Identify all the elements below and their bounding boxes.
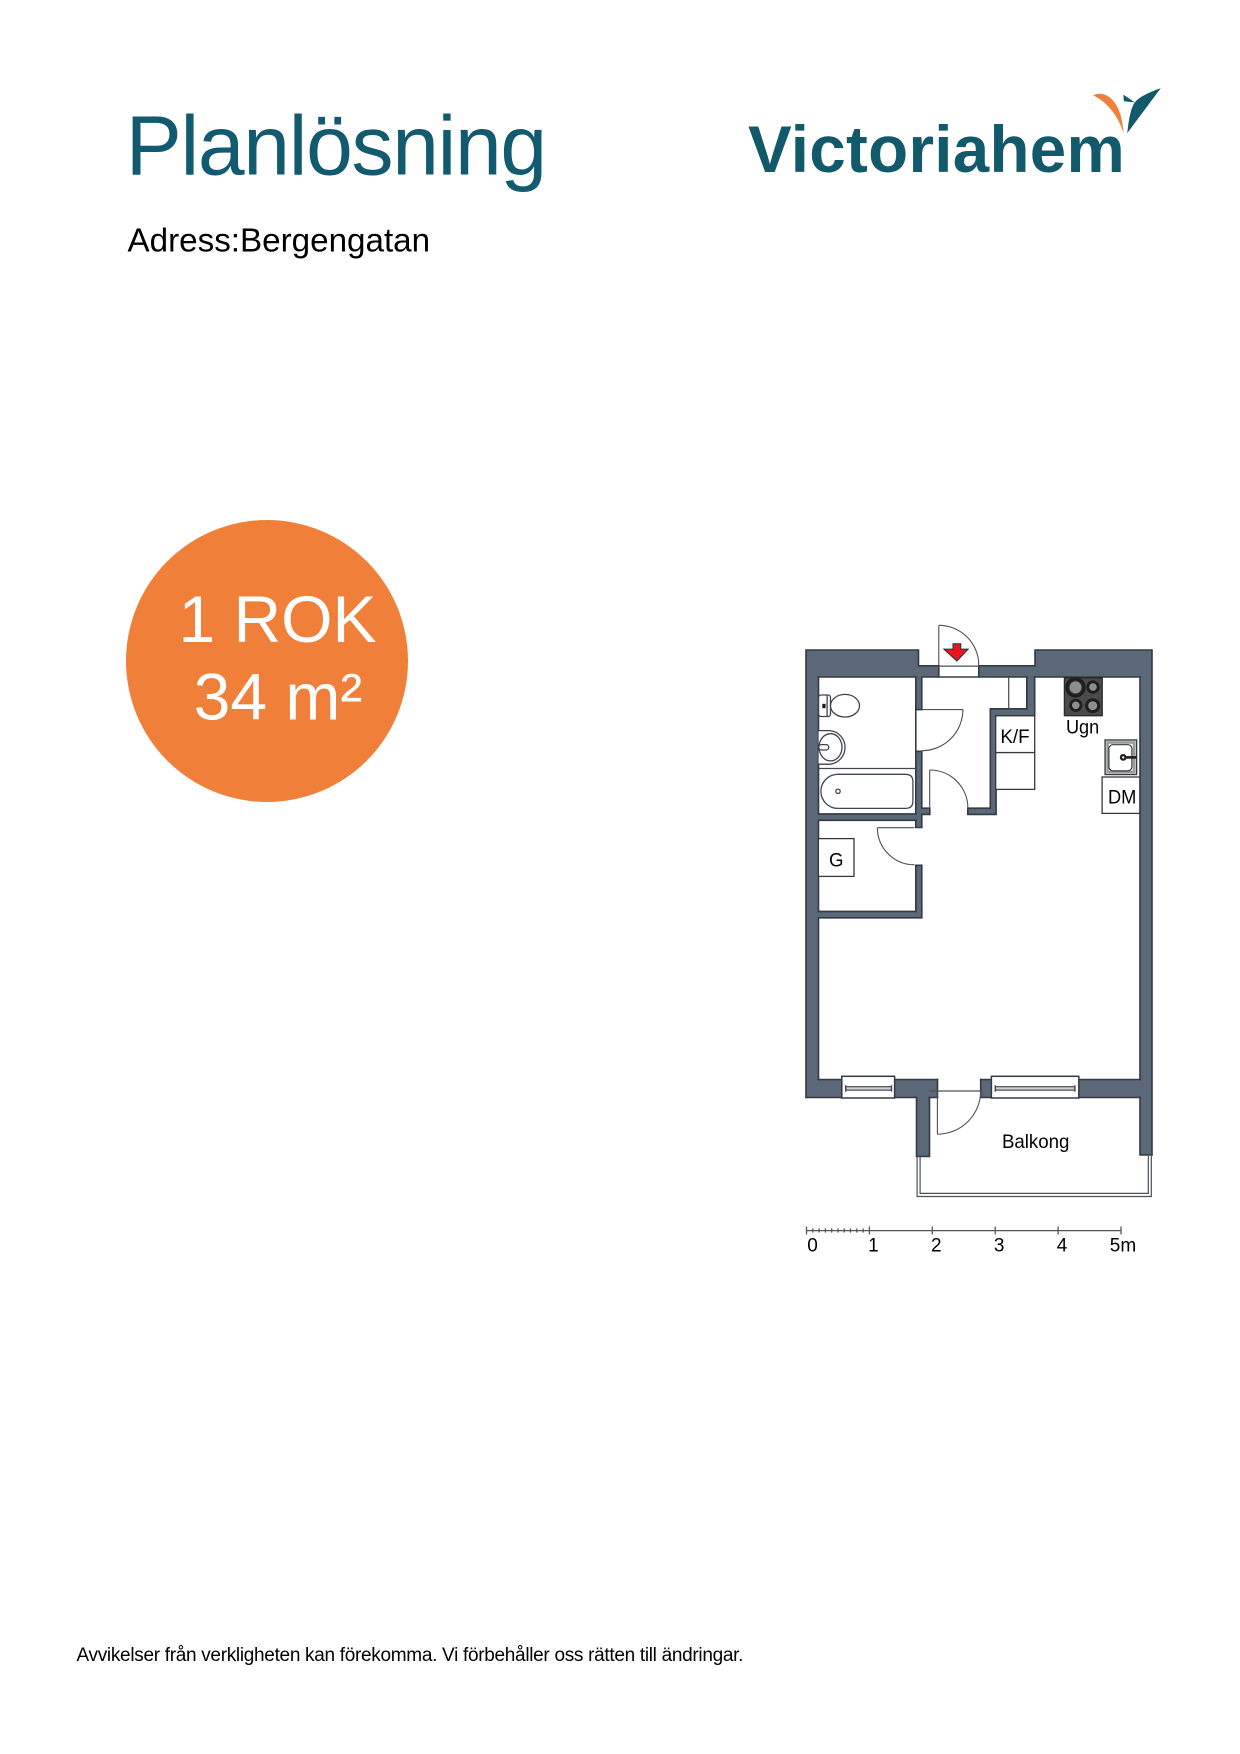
- svg-text:Planlösning: Planlösning: [126, 99, 546, 193]
- svg-text:3: 3: [994, 1236, 1005, 1257]
- svg-text:Adress:Bergengatan: Adress:Bergengatan: [128, 222, 431, 259]
- svg-text:2: 2: [931, 1236, 942, 1257]
- svg-text:G: G: [829, 850, 844, 872]
- svg-text:Avvikelser från verkligheten k: Avvikelser från verkligheten kan förekom…: [77, 1645, 744, 1666]
- svg-text:4: 4: [1057, 1236, 1068, 1257]
- svg-text:1: 1: [868, 1236, 879, 1257]
- svg-text:DM: DM: [1108, 787, 1136, 809]
- svg-text:Ugn: Ugn: [1066, 716, 1099, 738]
- svg-text:5m: 5m: [1110, 1236, 1136, 1257]
- svg-text:0: 0: [807, 1236, 818, 1257]
- svg-text:Balkong: Balkong: [1002, 1131, 1070, 1153]
- svg-text:K/F: K/F: [1000, 726, 1029, 748]
- svg-text:34 m²: 34 m²: [194, 659, 363, 733]
- svg-text:1 ROK: 1 ROK: [178, 582, 376, 656]
- svg-text:Victoriahem: Victoriahem: [748, 113, 1125, 186]
